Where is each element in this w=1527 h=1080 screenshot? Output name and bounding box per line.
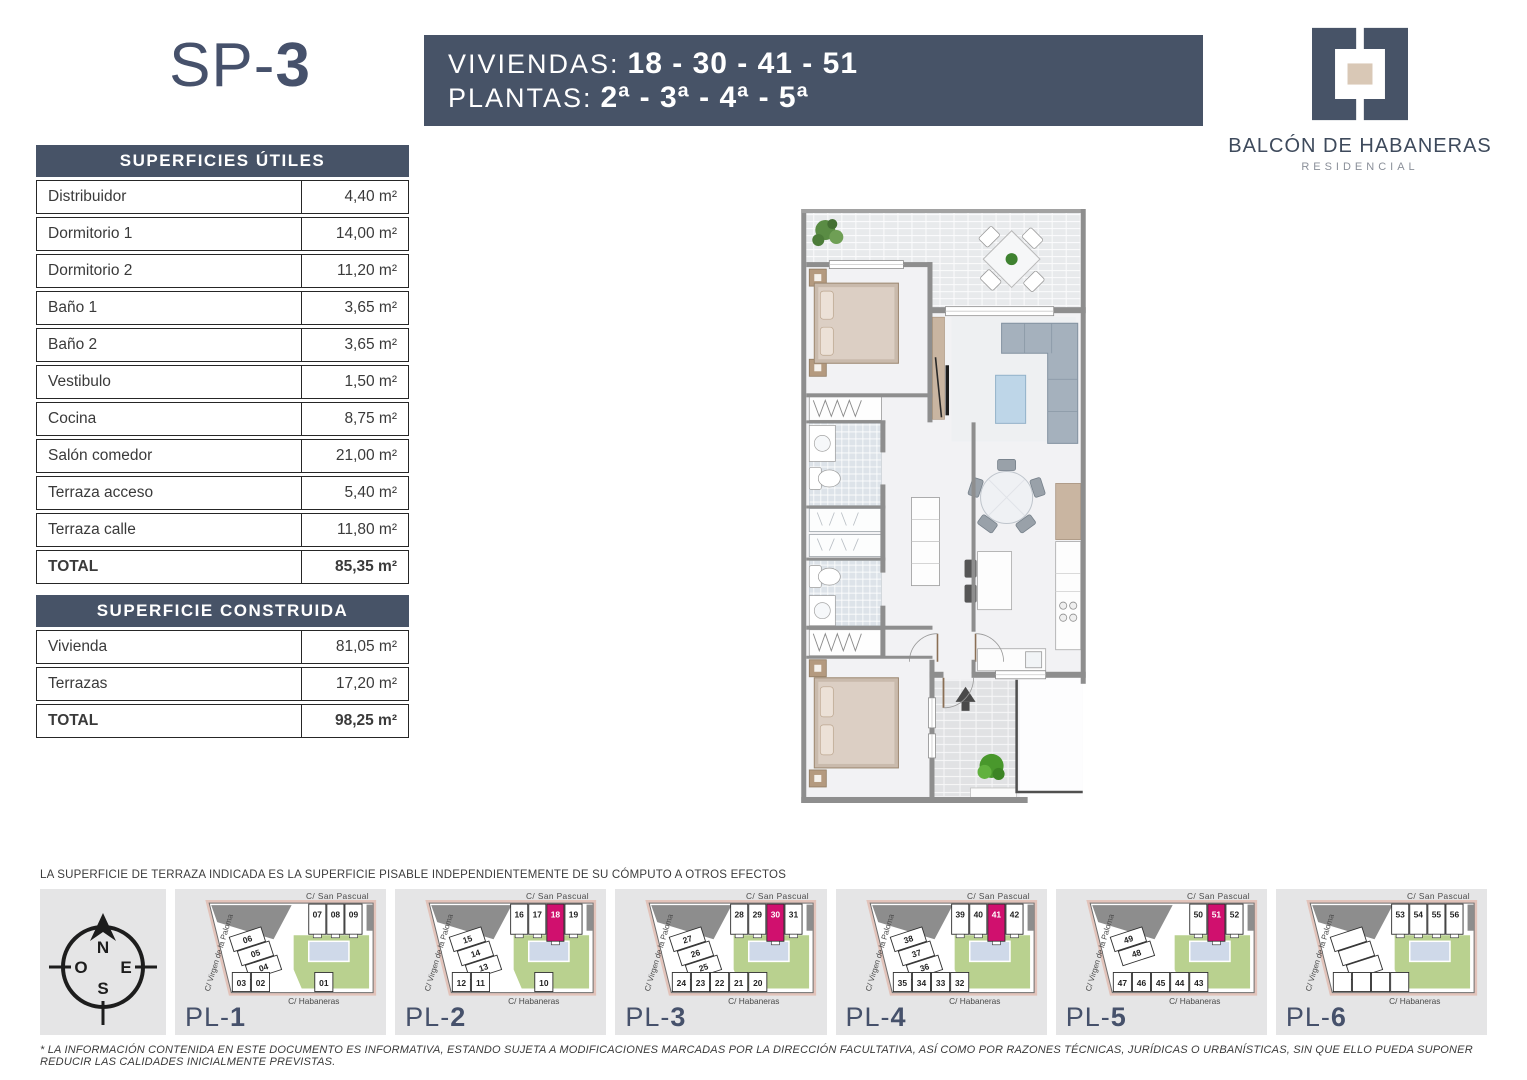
plan-panel-1: 070809060504030201C/ San PascualC/ Virge…	[175, 889, 386, 1035]
svg-text:41: 41	[991, 910, 1001, 920]
plan-label: PL-5	[1066, 1002, 1127, 1033]
area-row-label: Vivienda	[36, 630, 301, 664]
plan-panel-2: 16171819151413121110C/ San PascualC/ Vir…	[395, 889, 606, 1035]
table-row: Baño 13,65 m²	[36, 291, 409, 325]
street-label-top: C/ San Pascual	[306, 891, 369, 901]
table-row: Vivienda81,05 m²	[36, 630, 409, 664]
street-label-top: C/ San Pascual	[1407, 891, 1470, 901]
area-row-value: 81,05 m²	[301, 630, 409, 664]
mini-plan-map-5: 50515249484746454443C/ San PascualC/ Vir…	[1056, 889, 1267, 1013]
street-label-bottom: C/ Habaneras	[1169, 996, 1220, 1006]
floor-plan	[799, 207, 1090, 808]
area-row-label: TOTAL	[36, 704, 301, 738]
street-label-bottom: C/ Habaneras	[508, 996, 559, 1006]
plan-label: PL-6	[1286, 1002, 1347, 1033]
street-label-top: C/ San Pascual	[1187, 891, 1250, 901]
kitchen-island	[978, 552, 1012, 610]
logo-h-icon	[1302, 26, 1418, 122]
svg-text:16: 16	[515, 910, 525, 920]
svg-text:52: 52	[1229, 910, 1239, 920]
svg-text:20: 20	[753, 978, 763, 988]
pillow	[820, 725, 833, 755]
area-row-value: 8,75 m²	[301, 402, 409, 436]
pool	[529, 941, 569, 961]
bathroom-2	[809, 561, 881, 626]
svg-text:46: 46	[1136, 978, 1146, 988]
pillow	[820, 327, 833, 355]
svg-text:45: 45	[1156, 978, 1166, 988]
svg-text:07: 07	[313, 910, 323, 920]
street-label-top: C/ San Pascual	[967, 891, 1030, 901]
table-row: Terraza acceso5,40 m²	[36, 476, 409, 510]
compass-panel: N O E S	[40, 889, 166, 1035]
pool	[969, 941, 1009, 961]
street-label-bottom: C/ Habaneras	[728, 996, 779, 1006]
kitchen-counter-right	[1056, 542, 1081, 650]
area-row-value: 14,00 m²	[301, 217, 409, 251]
kitchen-sink	[1026, 652, 1042, 668]
wardrobe-1	[809, 396, 881, 420]
svg-text:32: 32	[955, 978, 965, 988]
table-row: Distribuidor4,40 m²	[36, 180, 409, 214]
svg-text:28: 28	[735, 910, 745, 920]
superficies-utiles-title: SUPERFICIES ÚTILES	[36, 145, 409, 177]
area-row-label: Dormitorio 2	[36, 254, 301, 288]
mini-plan-map-2: 16171819151413121110C/ San PascualC/ Vir…	[395, 889, 606, 1013]
plan-label: PL-3	[625, 1002, 686, 1033]
svg-text:44: 44	[1175, 978, 1185, 988]
svg-text:17: 17	[533, 910, 543, 920]
svg-text:54: 54	[1413, 910, 1423, 920]
access-terrace-floor	[934, 680, 1016, 796]
plan-panel-6: 53545556C/ San PascualC/ Virgen de la Pa…	[1276, 889, 1487, 1035]
banner-plantas-line: PLANTAS:2ª - 3ª - 4ª - 5ª	[448, 82, 1203, 114]
plan-panel-5: 50515249484746454443C/ San PascualC/ Vir…	[1056, 889, 1267, 1035]
table-total-row: TOTAL98,25 m²	[36, 704, 409, 738]
svg-text:56: 56	[1450, 910, 1460, 920]
area-row-value: 11,20 m²	[301, 254, 409, 288]
page-title-number: 3	[275, 31, 310, 100]
area-row-label: Baño 1	[36, 291, 301, 325]
svg-text:22: 22	[715, 978, 725, 988]
compass-e: E	[120, 958, 131, 977]
floor-plan-svg	[799, 207, 1090, 808]
table-row: Terrazas17,20 m²	[36, 667, 409, 701]
svg-text:43: 43	[1194, 978, 1204, 988]
svg-text:11: 11	[476, 978, 485, 988]
svg-text:51: 51	[1211, 910, 1221, 920]
mini-plan-map-3: 282930312726252423222120C/ San PascualC/…	[615, 889, 826, 1013]
area-row-value: 5,40 m²	[301, 476, 409, 510]
area-row-label: Salón comedor	[36, 439, 301, 473]
pool	[749, 941, 789, 961]
svg-text:34: 34	[916, 978, 926, 988]
svg-text:35: 35	[897, 978, 907, 988]
table-plant	[1006, 253, 1018, 265]
hall-closet	[932, 317, 944, 419]
bedroom-2	[809, 660, 898, 787]
table-row: Terraza calle11,80 m²	[36, 513, 409, 547]
street-label-bottom: C/ Habaneras	[1389, 996, 1440, 1006]
superficie-construida-title: SUPERFICIE CONSTRUIDA	[36, 595, 409, 627]
svg-text:42: 42	[1009, 910, 1019, 920]
table-superficies-utiles: SUPERFICIES ÚTILESDistribuidor4,40 m²Dor…	[36, 142, 409, 587]
area-row-value: 3,65 m²	[301, 291, 409, 325]
bathroom-1	[809, 423, 881, 505]
svg-text:30: 30	[771, 910, 781, 920]
location-plans-row: N O E S 070809060504030201C/ San Pascual…	[40, 889, 1487, 1035]
superficie-construida: SUPERFICIE CONSTRUIDAVivienda81,05 m²Ter…	[36, 592, 409, 741]
table-row: Dormitorio 211,20 m²	[36, 254, 409, 288]
area-row-label: Baño 2	[36, 328, 301, 362]
page-title: SP-3	[116, 30, 364, 101]
table-row: Salón comedor21,00 m²	[36, 439, 409, 473]
plan-label: PL-4	[846, 1002, 907, 1033]
plantas-label: PLANTAS:	[448, 83, 593, 113]
area-row-value: 3,65 m²	[301, 328, 409, 362]
mini-plan-map-6: 53545556C/ San PascualC/ Virgen de la Pa…	[1276, 889, 1487, 1013]
svg-text:40: 40	[973, 910, 983, 920]
area-row-label: Terrazas	[36, 667, 301, 701]
plan-panel-4: 3940414238373635343332C/ San PascualC/ V…	[836, 889, 1047, 1035]
area-row-value: 1,50 m²	[301, 365, 409, 399]
svg-text:47: 47	[1117, 978, 1127, 988]
street-label-top: C/ San Pascual	[746, 891, 809, 901]
brand-logo: BALCÓN DE HABANERAS RESIDENCIAL	[1224, 26, 1496, 173]
area-row-label: Cocina	[36, 402, 301, 436]
bedroom-1	[809, 269, 898, 376]
exterior-area	[1020, 678, 1083, 800]
svg-text:53: 53	[1395, 910, 1405, 920]
fridge-column	[1056, 483, 1081, 539]
svg-text:21: 21	[734, 978, 744, 988]
area-row-value: 11,80 m²	[301, 513, 409, 547]
compass-s: S	[97, 979, 108, 998]
plan-label: PL-1	[185, 1002, 246, 1033]
area-row-label: Distribuidor	[36, 180, 301, 214]
area-row-label: Terraza acceso	[36, 476, 301, 510]
svg-text:24: 24	[677, 978, 687, 988]
tv	[946, 365, 950, 415]
page-title-prefix: SP-	[169, 31, 275, 100]
plan-panel-3: 282930312726252423222120C/ San PascualC/…	[615, 889, 826, 1035]
area-row-value: 4,40 m²	[301, 180, 409, 214]
svg-text:50: 50	[1193, 910, 1203, 920]
svg-text:23: 23	[696, 978, 706, 988]
wardrobe-2	[809, 630, 881, 656]
compass-n: N	[97, 938, 109, 957]
area-row-value: 98,25 m²	[301, 704, 409, 738]
brochure-page: SP-3 VIVIENDAS:18 - 30 - 41 - 51 PLANTAS…	[0, 0, 1527, 1080]
svg-text:01: 01	[319, 978, 329, 988]
svg-text:29: 29	[753, 910, 763, 920]
pillow	[820, 687, 833, 717]
brand-subtitle: RESIDENCIAL	[1224, 161, 1496, 173]
banner-viviendas-line: VIVIENDAS:18 - 30 - 41 - 51	[448, 48, 1203, 80]
legal-footnote: * LA INFORMACIÓN CONTENIDA EN ESTE DOCUM…	[40, 1044, 1492, 1068]
superficies-utiles: SUPERFICIES ÚTILESDistribuidor4,40 m²Dor…	[36, 142, 409, 587]
plan-label: PL-2	[405, 1002, 466, 1033]
pillow	[820, 291, 833, 319]
compass-o: O	[74, 958, 87, 977]
area-row-value: 21,00 m²	[301, 439, 409, 473]
pool	[1189, 941, 1229, 961]
header-banner: VIVIENDAS:18 - 30 - 41 - 51 PLANTAS:2ª -…	[424, 35, 1203, 126]
svg-text:10: 10	[539, 978, 549, 988]
svg-text:03: 03	[237, 978, 247, 988]
svg-text:08: 08	[331, 910, 341, 920]
area-row-label: Dormitorio 1	[36, 217, 301, 251]
svg-text:31: 31	[789, 910, 799, 920]
area-row-label: Vestibulo	[36, 365, 301, 399]
viviendas-label: VIVIENDAS:	[448, 49, 620, 79]
mini-plan-map-1: 070809060504030201C/ San PascualC/ Virge…	[175, 889, 386, 1013]
svg-text:18: 18	[551, 910, 561, 920]
svg-text:39: 39	[955, 910, 965, 920]
area-row-value: 17,20 m²	[301, 667, 409, 701]
table-row: Baño 23,65 m²	[36, 328, 409, 362]
table-row: Cocina8,75 m²	[36, 402, 409, 436]
viviendas-value: 18 - 30 - 41 - 51	[628, 47, 858, 80]
plantas-value: 2ª - 3ª - 4ª - 5ª	[601, 81, 809, 114]
table-total-row: TOTAL85,35 m²	[36, 550, 409, 584]
terrace-disclaimer: LA SUPERFICIE DE TERRAZA INDICADA ES LA …	[40, 869, 786, 881]
svg-text:12: 12	[457, 978, 467, 988]
entry-step	[971, 788, 1017, 798]
area-row-label: TOTAL	[36, 550, 301, 584]
street-label-bottom: C/ Habaneras	[949, 996, 1000, 1006]
svg-text:09: 09	[349, 910, 359, 920]
pool	[309, 941, 349, 961]
mini-plan-map-4: 3940414238373635343332C/ San PascualC/ V…	[836, 889, 1047, 1013]
area-row-label: Terraza calle	[36, 513, 301, 547]
svg-text:02: 02	[256, 978, 266, 988]
svg-text:19: 19	[569, 910, 579, 920]
coffee-table	[996, 375, 1026, 423]
brand-name: BALCÓN DE HABANERAS	[1224, 135, 1496, 158]
pool	[1410, 941, 1450, 961]
svg-text:33: 33	[935, 978, 945, 988]
area-row-value: 85,35 m²	[301, 550, 409, 584]
table-row: Vestibulo1,50 m²	[36, 365, 409, 399]
street-label-bottom: C/ Habaneras	[288, 996, 339, 1006]
table-superficie-construida: SUPERFICIE CONSTRUIDAVivienda81,05 m²Ter…	[36, 592, 409, 741]
compass-icon: N O E S	[40, 889, 166, 1035]
table-row: Dormitorio 114,00 m²	[36, 217, 409, 251]
svg-text:55: 55	[1432, 910, 1442, 920]
street-label-top: C/ San Pascual	[526, 891, 589, 901]
